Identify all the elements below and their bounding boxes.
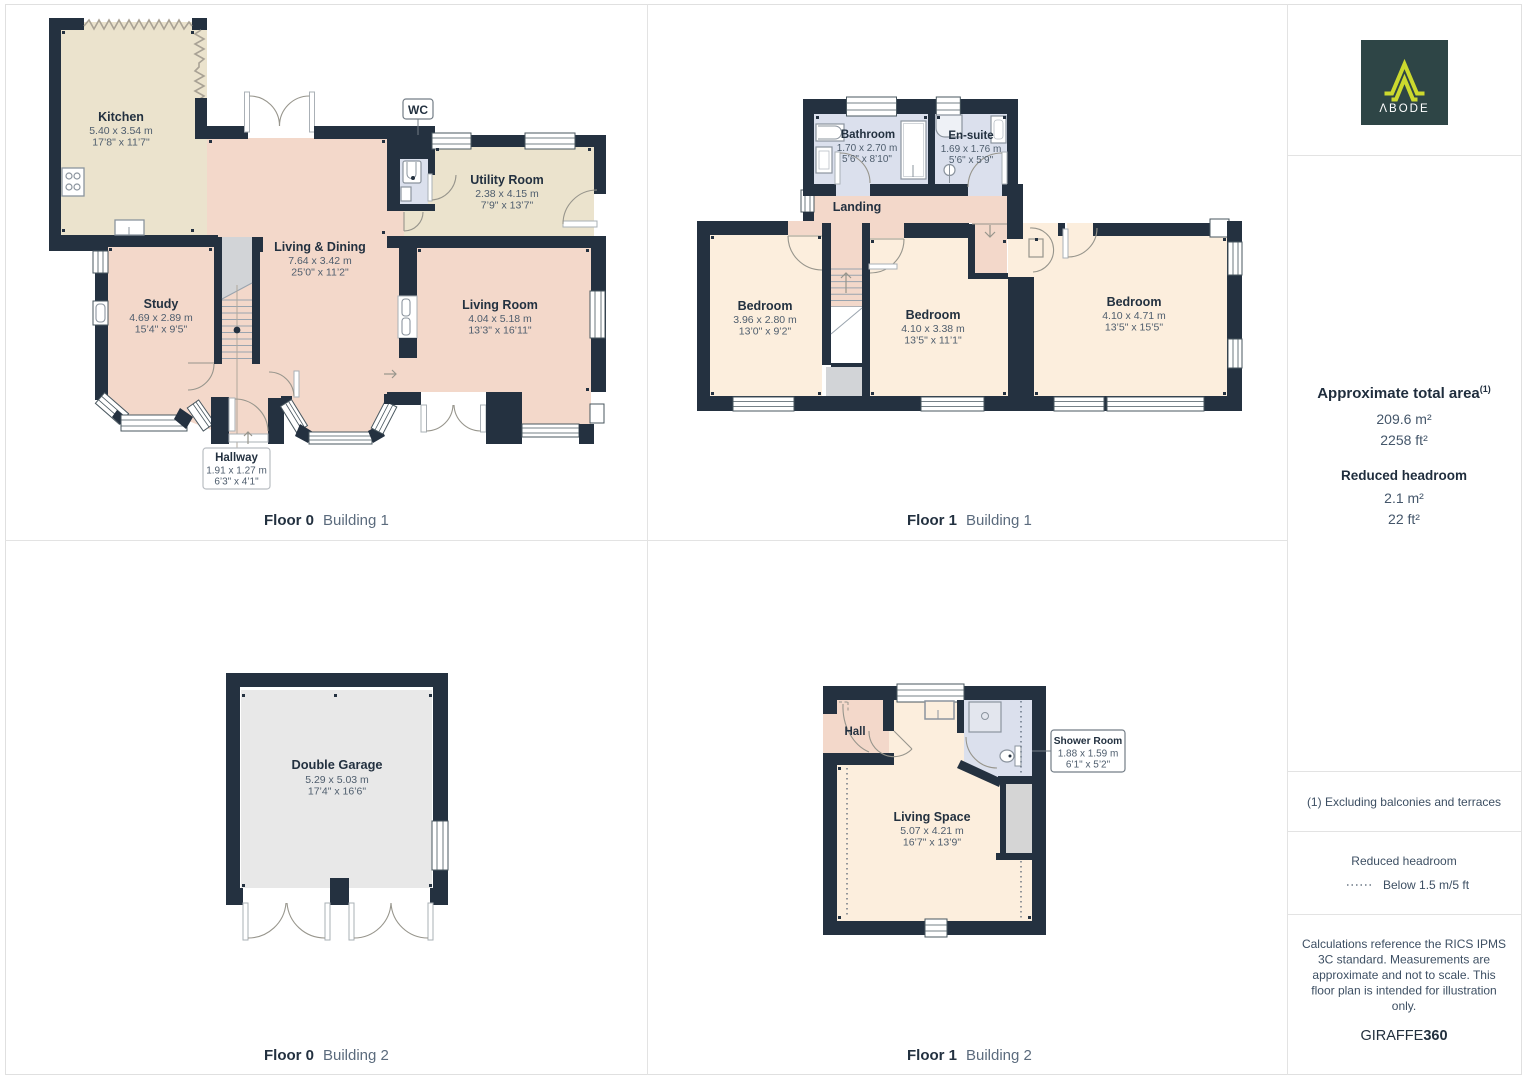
svg-text:approximate and not to scale.: approximate and not to scale. This <box>1312 968 1495 982</box>
svg-text:6’3" x 4’1": 6’3" x 4’1" <box>214 477 259 488</box>
svg-text:Bedroom: Bedroom <box>738 299 793 313</box>
svg-text:Reduced headroom: Reduced headroom <box>1341 468 1467 483</box>
svg-text:2.1 m²: 2.1 m² <box>1384 490 1424 506</box>
svg-text:209.6 m²: 209.6 m² <box>1376 411 1432 427</box>
svg-text:3.96 x 2.80 m: 3.96 x 2.80 m <box>733 314 797 326</box>
svg-text:5.07 x 4.21 m: 5.07 x 4.21 m <box>900 825 964 837</box>
svg-text:1.91 x 1.27 m: 1.91 x 1.27 m <box>206 466 267 477</box>
svg-text:Approximate total area(1): Approximate total area(1) <box>1317 384 1491 402</box>
svg-text:2.38 x 4.15 m: 2.38 x 4.15 m <box>475 188 539 200</box>
svg-text:Study: Study <box>144 297 179 311</box>
svg-text:Utility Room: Utility Room <box>470 173 544 187</box>
svg-text:17’8" x 11’7": 17’8" x 11’7" <box>92 137 150 149</box>
svg-text:WC: WC <box>408 103 428 117</box>
svg-text:Landing: Landing <box>833 200 882 214</box>
svg-text:Floor 0: Floor 0 <box>264 512 314 529</box>
svg-text:only.: only. <box>1392 999 1416 1013</box>
svg-text:Double Garage: Double Garage <box>291 757 382 772</box>
svg-text:4.69 x 2.89 m: 4.69 x 2.89 m <box>129 312 193 324</box>
svg-text:Building 1: Building 1 <box>966 512 1032 529</box>
svg-text:Living Space: Living Space <box>893 810 970 824</box>
svg-text:floor plan is intended for ill: floor plan is intended for illustration <box>1311 984 1496 998</box>
svg-text:Below 1.5 m/5 ft: Below 1.5 m/5 ft <box>1383 878 1470 892</box>
svg-text:GIRAFFE360: GIRAFFE360 <box>1360 1028 1447 1044</box>
svg-text:Bedroom: Bedroom <box>1107 295 1162 309</box>
svg-text:4.10 x 4.71 m: 4.10 x 4.71 m <box>1102 310 1166 322</box>
svg-text:5’6" x 5’9": 5’6" x 5’9" <box>949 155 994 166</box>
svg-text:Calculations reference the RIC: Calculations reference the RICS IPMS <box>1302 937 1506 951</box>
svg-text:17’4" x 16’6": 17’4" x 16’6" <box>308 786 367 798</box>
svg-text:13’5" x 15’5": 13’5" x 15’5" <box>1105 322 1164 334</box>
svg-text:En-suite: En-suite <box>948 130 993 142</box>
svg-text:Bathroom: Bathroom <box>841 129 895 141</box>
svg-text:5.40 x 3.54 m: 5.40 x 3.54 m <box>89 125 153 137</box>
svg-text:Bedroom: Bedroom <box>906 308 961 322</box>
svg-text:5.29 x 5.03 m: 5.29 x 5.03 m <box>305 774 369 786</box>
svg-text:6’1" x 5’2": 6’1" x 5’2" <box>1066 760 1111 771</box>
svg-text:15’4" x 9’5": 15’4" x 9’5" <box>135 324 188 336</box>
svg-text:ΛBODE: ΛBODE <box>1379 103 1429 115</box>
svg-text:Living Room: Living Room <box>462 298 538 312</box>
svg-text:Shower Room: Shower Room <box>1054 736 1123 747</box>
svg-text:7.64 x 3.42 m: 7.64 x 3.42 m <box>288 255 352 267</box>
svg-text:Reduced headroom: Reduced headroom <box>1351 854 1456 868</box>
svg-text:7’9" x 13’7": 7’9" x 13’7" <box>481 200 534 212</box>
svg-text:Kitchen: Kitchen <box>98 110 144 124</box>
svg-text:(1) Excluding balconies and te: (1) Excluding balconies and terraces <box>1307 795 1501 809</box>
svg-text:Building 2: Building 2 <box>323 1047 389 1064</box>
svg-text:Building 1: Building 1 <box>323 512 389 529</box>
svg-text:13’0" x 9’2": 13’0" x 9’2" <box>739 326 792 338</box>
svg-text:Hall: Hall <box>844 726 865 738</box>
svg-text:1.69 x 1.76 m: 1.69 x 1.76 m <box>941 144 1002 155</box>
svg-text:Building 2: Building 2 <box>966 1047 1032 1064</box>
svg-text:1.88 x 1.59 m: 1.88 x 1.59 m <box>1058 749 1119 760</box>
svg-text:Hallway: Hallway <box>215 452 258 464</box>
svg-text:5’6" x 8’10": 5’6" x 8’10" <box>842 154 892 165</box>
svg-text:25’0" x 11’2": 25’0" x 11’2" <box>291 267 349 279</box>
svg-text:Floor 0: Floor 0 <box>264 1047 314 1064</box>
svg-text:4.10 x 3.38 m: 4.10 x 3.38 m <box>901 323 965 335</box>
svg-text:13’5" x 11’1": 13’5" x 11’1" <box>904 335 962 347</box>
svg-text:Floor 1: Floor 1 <box>907 1047 957 1064</box>
svg-text:1.70 x 2.70 m: 1.70 x 2.70 m <box>837 143 898 154</box>
svg-text:16’7" x 13’9": 16’7" x 13’9" <box>903 837 962 849</box>
svg-text:22 ft²: 22 ft² <box>1388 511 1420 527</box>
svg-text:4.04 x 5.18 m: 4.04 x 5.18 m <box>468 313 532 325</box>
svg-text:2258 ft²: 2258 ft² <box>1380 432 1428 448</box>
svg-text:3C standard. Measurements are: 3C standard. Measurements are <box>1318 953 1490 967</box>
svg-text:13’3" x 16’11": 13’3" x 16’11" <box>468 325 532 337</box>
svg-text:Floor 1: Floor 1 <box>907 512 957 529</box>
svg-text:Living & Dining: Living & Dining <box>274 240 366 254</box>
